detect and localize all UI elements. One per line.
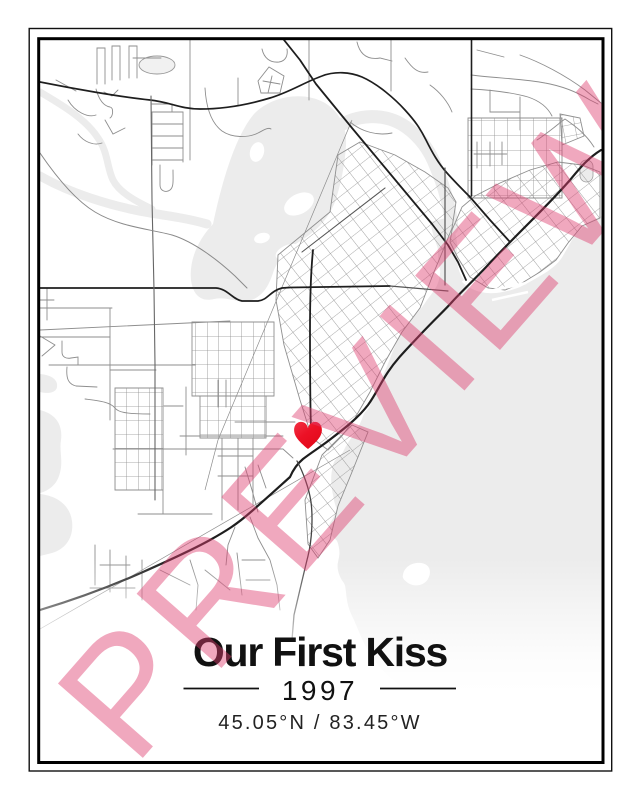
svg-text:45.05°N / 83.45°W: 45.05°N / 83.45°W xyxy=(218,712,421,734)
svg-text:1997: 1997 xyxy=(282,675,358,706)
